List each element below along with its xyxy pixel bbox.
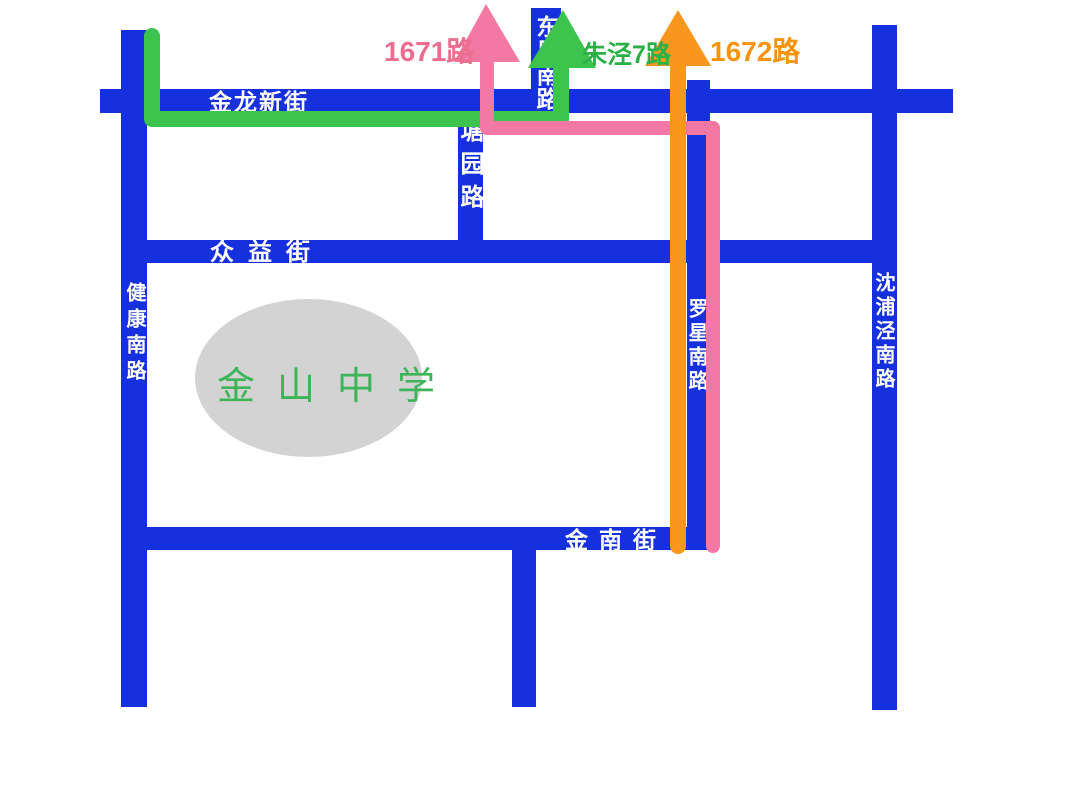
route-label-1671: 1671路 (384, 30, 474, 70)
route-label-1672: 1672路 (710, 30, 800, 70)
map-canvas: 金山中学 金龙新街 众益街 金南街 东风南路 塘园路 健康南路 罗星南路 沈浦泾… (0, 0, 1080, 809)
route-label-zhujing7: 朱泾7路 (582, 35, 671, 71)
bus-routes-layer (0, 0, 1080, 809)
